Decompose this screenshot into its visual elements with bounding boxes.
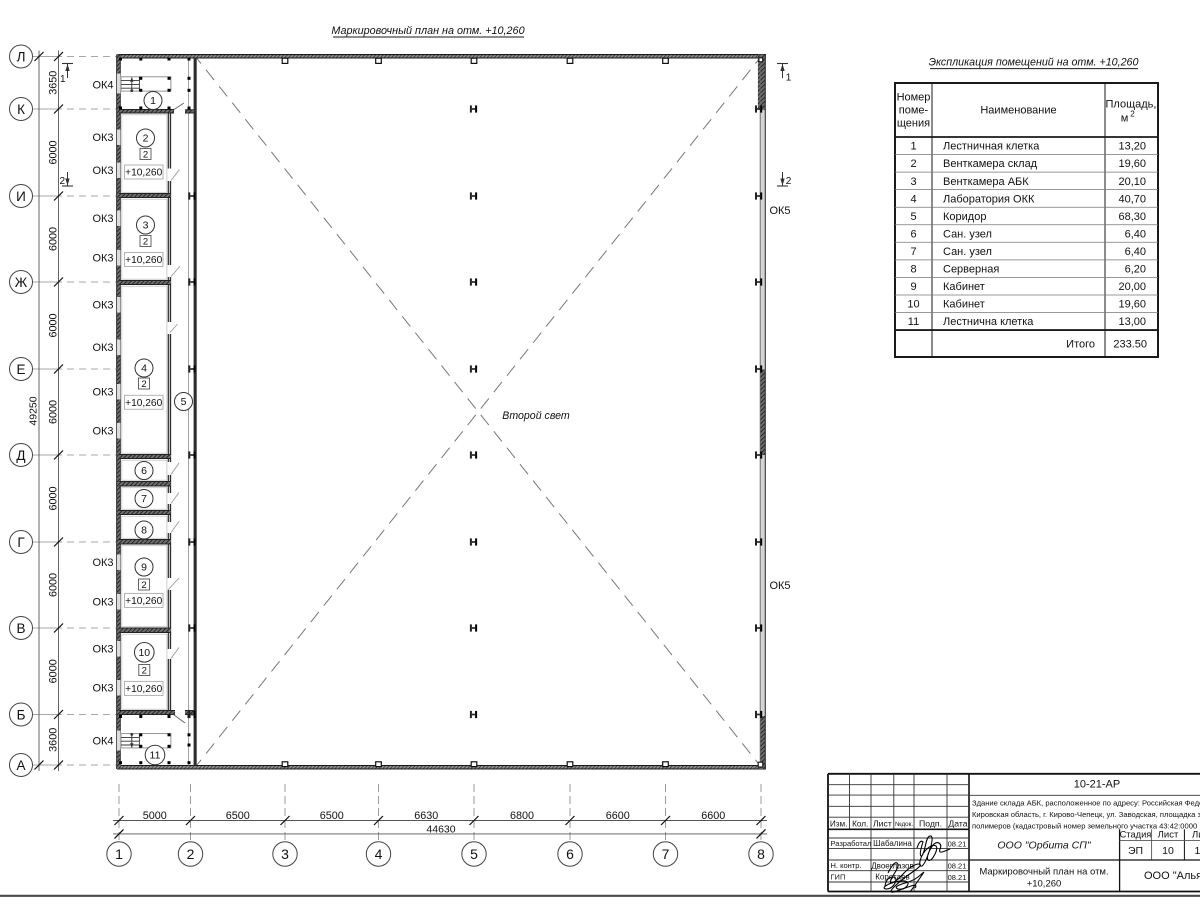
svg-text:4: 4	[375, 846, 383, 862]
svg-text:+10,260: +10,260	[125, 168, 162, 179]
svg-text:Наименование: Наименование	[980, 105, 1056, 117]
svg-text:6630: 6630	[414, 810, 438, 822]
svg-text:3650: 3650	[47, 71, 59, 95]
svg-text:ОК3: ОК3	[92, 557, 113, 569]
svg-text:ОК3: ОК3	[92, 132, 113, 144]
svg-text:ГИП: ГИП	[831, 872, 846, 881]
svg-text:6000: 6000	[47, 486, 59, 510]
svg-text:4: 4	[141, 363, 147, 375]
svg-text:Венткамера АБК: Венткамера АБК	[943, 176, 1029, 188]
svg-text:Подп.: Подп.	[919, 819, 942, 829]
svg-text:ОК3: ОК3	[92, 426, 113, 438]
svg-text:2: 2	[143, 150, 148, 161]
svg-text:7: 7	[662, 846, 670, 862]
svg-text:6: 6	[566, 846, 574, 862]
svg-text:2: 2	[786, 176, 792, 187]
svg-text:20,00: 20,00	[1118, 281, 1146, 293]
svg-text:Венткамера склад: Венткамера склад	[943, 158, 1038, 170]
svg-text:Коридор: Коридор	[943, 211, 986, 223]
svg-text:6,20: 6,20	[1125, 264, 1146, 276]
svg-text:№док.: №док.	[895, 821, 913, 828]
svg-text:ООО "Альянс: ООО "Альянс	[1144, 870, 1200, 882]
svg-text:19,60: 19,60	[1118, 158, 1146, 170]
svg-text:Б: Б	[17, 707, 26, 722]
svg-text:11: 11	[150, 750, 161, 762]
svg-text:6800: 6800	[510, 810, 534, 822]
svg-text:49250: 49250	[27, 396, 39, 425]
svg-text:3600: 3600	[47, 728, 59, 752]
svg-text:Дата: Дата	[948, 819, 967, 829]
svg-text:Разработал: Разработал	[831, 839, 872, 848]
svg-text:Ли: Ли	[1192, 830, 1200, 841]
svg-text:3: 3	[910, 176, 916, 188]
svg-text:Номер: Номер	[897, 92, 931, 104]
svg-text:10-21-АР: 10-21-АР	[1074, 779, 1120, 791]
svg-text:6500: 6500	[320, 810, 344, 822]
svg-text:10: 10	[138, 647, 150, 659]
svg-text:ЭП: ЭП	[1128, 845, 1143, 857]
svg-text:Экспликация помещений на отм.: Экспликация помещений на отм. +10,260	[929, 57, 1139, 69]
svg-text:8: 8	[910, 264, 916, 276]
svg-text:10: 10	[907, 299, 919, 311]
svg-text:9: 9	[141, 562, 147, 574]
svg-text:2: 2	[141, 379, 146, 390]
svg-text:08.21: 08.21	[948, 862, 967, 871]
svg-text:08.21: 08.21	[948, 840, 967, 849]
svg-text:А: А	[16, 758, 25, 773]
svg-text:9: 9	[910, 281, 916, 293]
svg-text:1: 1	[910, 141, 916, 153]
svg-text:2: 2	[141, 580, 146, 591]
svg-text:08.21: 08.21	[948, 873, 967, 882]
svg-text:Изм.: Изм.	[830, 819, 848, 828]
svg-text:8: 8	[757, 846, 765, 862]
svg-text:Кол.: Кол.	[852, 819, 868, 828]
svg-text:2: 2	[143, 133, 149, 145]
svg-text:2: 2	[910, 158, 916, 170]
svg-text:Кировская область, г. Кирово-Ч: Кировская область, г. Кирово-Чепецк, ул.…	[972, 810, 1200, 819]
svg-text:Маркировочный план на отм.: Маркировочный план на отм.	[979, 867, 1108, 878]
svg-text:6000: 6000	[47, 227, 59, 251]
svg-text:ОК3: ОК3	[92, 683, 113, 695]
svg-text:+10,260: +10,260	[125, 398, 162, 409]
svg-text:Лестничная клетка: Лестничная клетка	[943, 141, 1040, 153]
svg-text:1: 1	[1195, 845, 1200, 857]
svg-text:Маркировочный план на отм. +10: Маркировочный план на отм. +10,260	[331, 25, 524, 37]
svg-text:6: 6	[910, 228, 916, 240]
svg-text:6000: 6000	[47, 313, 59, 337]
svg-text:7: 7	[910, 246, 916, 258]
svg-text:6000: 6000	[47, 573, 59, 597]
svg-text:щения: щения	[897, 118, 930, 130]
svg-text:ОК3: ОК3	[92, 597, 113, 609]
svg-text:Сан. узел: Сан. узел	[943, 228, 992, 240]
svg-text:ОК3: ОК3	[92, 387, 113, 399]
svg-text:+10,260: +10,260	[1027, 879, 1062, 890]
svg-text:2: 2	[60, 176, 66, 187]
svg-text:+10,260: +10,260	[125, 255, 162, 266]
svg-text:м: м	[1121, 113, 1129, 125]
svg-text:Лист: Лист	[873, 819, 892, 829]
svg-text:ОК5: ОК5	[769, 205, 790, 217]
svg-text:К: К	[17, 102, 25, 117]
svg-text:13,20: 13,20	[1118, 141, 1146, 153]
svg-text:ОК3: ОК3	[92, 165, 113, 177]
svg-text:ОК3: ОК3	[92, 342, 113, 354]
svg-text:Стадия: Стадия	[1120, 830, 1152, 840]
svg-text:1: 1	[60, 74, 66, 85]
svg-text:Кабинет: Кабинет	[943, 281, 985, 293]
svg-text:Лист: Лист	[1158, 830, 1179, 841]
svg-text:3: 3	[281, 846, 289, 862]
svg-text:5000: 5000	[143, 810, 167, 822]
svg-text:40,70: 40,70	[1118, 193, 1146, 205]
svg-text:Н. контр.: Н. контр.	[831, 861, 862, 870]
svg-text:13,00: 13,00	[1118, 316, 1146, 328]
svg-text:44630: 44630	[426, 824, 455, 836]
svg-text:8: 8	[141, 525, 147, 537]
svg-text:2: 2	[143, 237, 148, 248]
svg-text:ОК3: ОК3	[92, 644, 113, 656]
svg-text:+10,260: +10,260	[125, 596, 162, 607]
svg-text:Здание склада АБК, расположенн: Здание склада АБК, расположенное по адре…	[972, 798, 1200, 807]
svg-text:6,40: 6,40	[1125, 228, 1146, 240]
svg-text:Ж: Ж	[15, 275, 28, 290]
svg-text:5: 5	[910, 211, 916, 223]
svg-text:233.50: 233.50	[1113, 339, 1147, 351]
svg-text:6: 6	[141, 465, 147, 477]
svg-text:11: 11	[908, 316, 919, 328]
svg-text:1: 1	[115, 846, 123, 862]
svg-text:10: 10	[1162, 845, 1174, 857]
svg-text:5: 5	[470, 846, 478, 862]
svg-text:Г: Г	[17, 535, 25, 550]
svg-text:ООО "Орбита СП": ООО "Орбита СП"	[997, 840, 1091, 852]
svg-text:Сан. узел: Сан. узел	[943, 246, 992, 258]
svg-text:6000: 6000	[47, 140, 59, 164]
svg-text:6600: 6600	[701, 810, 725, 822]
svg-text:6500: 6500	[226, 810, 250, 822]
svg-text:2: 2	[1130, 110, 1135, 119]
svg-text:1: 1	[150, 95, 156, 107]
svg-text:2: 2	[187, 846, 195, 862]
svg-text:20,10: 20,10	[1118, 176, 1146, 188]
svg-text:Л: Л	[17, 49, 26, 64]
svg-text:4: 4	[910, 193, 916, 205]
svg-text:ОК4: ОК4	[92, 80, 113, 92]
svg-text:5: 5	[181, 396, 187, 408]
svg-text:68,30: 68,30	[1118, 211, 1146, 223]
svg-text:Лестнична клетка: Лестнична клетка	[943, 316, 1034, 328]
svg-text:7: 7	[141, 493, 147, 505]
svg-text:19,60: 19,60	[1118, 299, 1146, 311]
svg-text:Кабинет: Кабинет	[943, 299, 985, 311]
svg-text:+10,260: +10,260	[125, 684, 162, 695]
svg-text:Д: Д	[16, 448, 25, 463]
svg-text:6000: 6000	[47, 659, 59, 683]
svg-text:6000: 6000	[47, 400, 59, 424]
svg-text:ОК4: ОК4	[92, 736, 113, 748]
svg-text:Второй свет: Второй свет	[502, 410, 570, 422]
svg-text:3: 3	[143, 220, 149, 232]
svg-text:ОК3: ОК3	[92, 253, 113, 265]
svg-text:Лаборатория ОКК: Лаборатория ОКК	[943, 193, 1035, 205]
svg-text:Е: Е	[16, 362, 25, 377]
svg-text:Итого: Итого	[1066, 339, 1095, 351]
svg-text:поме-: поме-	[899, 105, 929, 117]
svg-text:ОК5: ОК5	[769, 580, 790, 592]
svg-text:Шабалина: Шабалина	[873, 839, 912, 848]
svg-text:ОК3: ОК3	[92, 213, 113, 225]
svg-text:6600: 6600	[606, 810, 630, 822]
svg-text:И: И	[16, 189, 26, 204]
svg-text:6,40: 6,40	[1125, 246, 1146, 258]
svg-text:В: В	[16, 621, 25, 636]
svg-text:2: 2	[142, 666, 147, 677]
svg-text:ОК3: ОК3	[92, 300, 113, 312]
svg-text:1: 1	[786, 73, 792, 84]
svg-text:Серверная: Серверная	[943, 264, 999, 276]
